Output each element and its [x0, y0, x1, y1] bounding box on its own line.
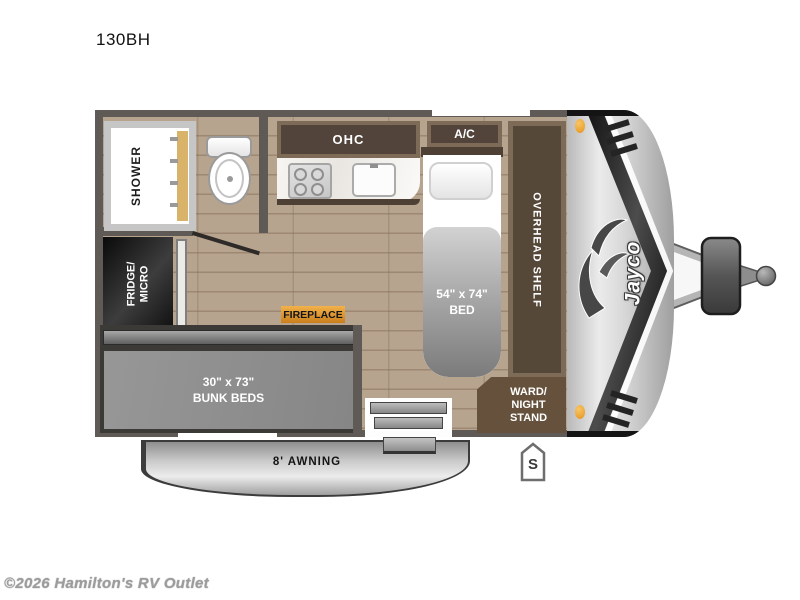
ohc-label: OHC: [333, 132, 365, 147]
bed-size-label: 54" x 74" BED: [436, 286, 487, 318]
wardrobe-label: WARD/ NIGHT STAND: [496, 386, 547, 425]
ac-label: A/C: [454, 127, 475, 141]
shower-label: SHOWER: [129, 146, 143, 206]
overhead-shelf: OVERHEAD SHELF: [508, 121, 566, 378]
trailer-hitch: [660, 233, 785, 319]
brand-logo: Jayco: [621, 241, 645, 306]
bunk-size-label: 30" x 73" BUNK BEDS: [193, 374, 264, 406]
floorplan-page: 130BH SHOWER FRIDGE/ MICRO OHC A/C: [0, 0, 800, 600]
entry-step-well: [365, 398, 452, 431]
page-title: 130BH: [96, 30, 150, 50]
fireplace: FIREPLACE: [281, 306, 345, 323]
shower-hinge-icon: [170, 159, 178, 163]
shower-hinge-icon: [170, 137, 178, 141]
cap-top-edge: [567, 110, 665, 116]
fridge-cabinet-door: [176, 239, 187, 328]
door-s-marker: S: [519, 442, 547, 482]
burner-icon: [311, 168, 324, 181]
entry-step: [370, 402, 447, 414]
burner-icon: [294, 168, 307, 181]
bunk-mattress: 30" x 73" BUNK BEDS: [104, 351, 353, 429]
kitchen-sink: [352, 163, 396, 197]
shower-door: [177, 131, 188, 221]
door-s-label: S: [528, 456, 538, 473]
bunk-end-wall: [353, 325, 362, 437]
overhead-cabinet: OHC: [277, 121, 420, 158]
faucet-icon: [370, 164, 378, 168]
wardrobe-nightstand: WARD/ NIGHT STAND: [477, 377, 566, 433]
window-top: [432, 110, 530, 116]
stove-cooktop: [288, 163, 332, 199]
toilet: [208, 152, 251, 205]
hitch-ball-icon: [757, 267, 776, 286]
toilet-flush-icon: [227, 176, 233, 182]
shower: SHOWER: [104, 121, 196, 231]
bed-blanket: 54" x 74" BED: [423, 227, 501, 377]
bed: 54" x 74" BED: [423, 155, 501, 377]
fireplace-label: FIREPLACE: [283, 309, 343, 321]
kitchen-counter-edge: [277, 199, 420, 205]
burner-icon: [294, 183, 307, 196]
fridge-label-line1: FRIDGE/: [125, 261, 137, 306]
marker-light-icon: [575, 405, 585, 419]
fridge-label-line2: MICRO: [138, 265, 150, 302]
fridge-micro: FRIDGE/ MICRO: [103, 237, 173, 330]
entry-step: [374, 417, 443, 429]
overhead-shelf-label: OVERHEAD SHELF: [531, 192, 543, 307]
air-conditioner: A/C: [427, 121, 502, 147]
entry-step-outside: [383, 437, 436, 454]
bathroom-wall-vertical: [259, 117, 268, 233]
dealer-watermark: ©2026 Hamilton's RV Outlet: [4, 575, 209, 592]
marker-light-icon: [575, 119, 585, 133]
bunk-rail: [103, 330, 354, 345]
shower-hinge-icon: [170, 203, 178, 207]
shower-hinge-icon: [170, 181, 178, 185]
pillow: [429, 162, 493, 200]
bunk-beds: 30" x 73" BUNK BEDS: [100, 325, 357, 433]
burner-icon: [311, 183, 324, 196]
awning-label: 8' AWNING: [273, 456, 341, 495]
hitch-jack-icon: [702, 238, 740, 314]
front-cap: Jayco: [567, 110, 674, 437]
cap-bottom-edge: [567, 431, 665, 437]
